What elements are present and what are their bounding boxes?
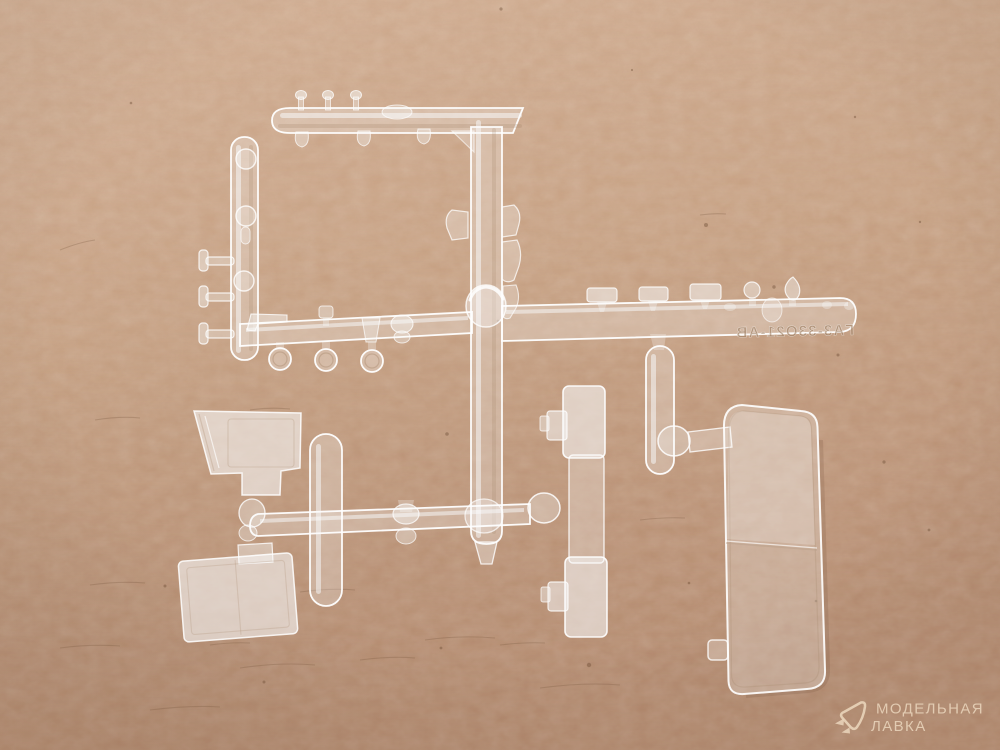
svg-text:ГA3-33О21-АВ: ГA3-33О21-АВ — [735, 322, 854, 342]
svg-text:МОДЕЛЬНАЯ: МОДЕЛЬНАЯ — [876, 701, 984, 718]
svg-text:ЛАВКА: ЛАВКА — [871, 718, 927, 735]
